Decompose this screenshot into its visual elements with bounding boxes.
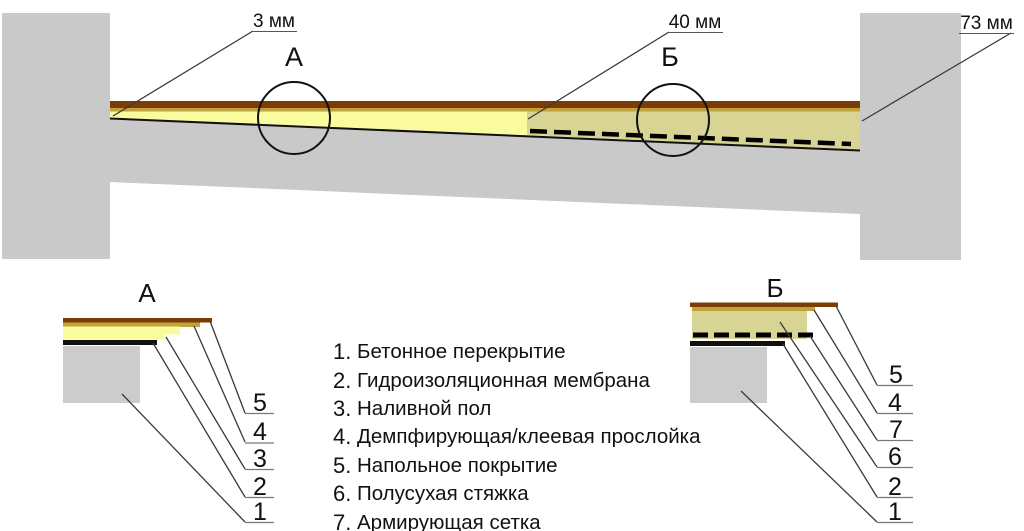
detail-b-number-4: 4: [888, 389, 902, 417]
legend-item-label: Полусухая стяжка: [357, 482, 529, 506]
detail-b-leader-5: [836, 306, 877, 385]
legend-item-6: 6. Полусухая стяжка: [333, 480, 701, 508]
detail-a-leveling-floor: [63, 327, 165, 340]
legend-item-5: 5. Напольное покрытие: [333, 452, 701, 480]
legend-item-label: Гидроизоляционная мембрана: [357, 369, 650, 393]
detail-a-leader-3: [166, 337, 245, 469]
legend-item-number: 7.: [333, 510, 357, 531]
floor-covering-layer: [110, 101, 860, 108]
detail-a-covering: [63, 318, 212, 323]
legend-item-2: 2. Гидроизоляционная мембрана: [333, 366, 701, 394]
legend-item-label: Демпфирующая/клеевая прослойка: [357, 425, 701, 449]
detail-b-concrete: [690, 347, 767, 403]
legend-item-1: 1. Бетонное перекрытие: [333, 338, 701, 366]
legend-item-number: 2.: [333, 368, 357, 394]
callout-letter-b: Б: [650, 44, 690, 71]
detail-b-leader-1: [741, 391, 877, 522]
legend-item-number: 5.: [333, 453, 357, 479]
adhesive-layer: [110, 108, 860, 112]
detail-b-number-7: 7: [889, 416, 903, 444]
detail-b-leader-7: [810, 336, 877, 440]
detail-a-adhesive: [63, 323, 200, 328]
detail-b-leader-6: [780, 322, 877, 467]
detail-a-membrane: [63, 340, 157, 345]
detail-b-title: Б: [750, 275, 800, 301]
detail-a-number-2: 2: [253, 473, 267, 501]
legend-item-label: Армирующая сетка: [357, 511, 541, 531]
detail-b-number-5: 5: [889, 361, 903, 389]
legend-item-number: 3.: [333, 396, 357, 422]
legend-item-3: 3. Наливной пол: [333, 395, 701, 423]
detail-a-concrete: [63, 346, 140, 403]
dimension-label-3mm: 3 мм: [251, 14, 297, 32]
detail-a-leveling-floor-step: [165, 327, 180, 335]
legend-item-label: Бетонное перекрытие: [357, 340, 566, 364]
detail-a-number-3: 3: [253, 445, 267, 473]
detail-b-number-2: 2: [888, 473, 902, 501]
detail-a-number-4: 4: [253, 418, 267, 446]
detail-b-covering: [690, 303, 838, 308]
detail-b-membrane: [690, 341, 785, 346]
dimension-label-73mm: 73 мм: [959, 16, 1014, 34]
dimension-label-40mm: 40 мм: [667, 15, 723, 33]
callout-letter-a: А: [274, 44, 314, 71]
detail-a-number-1: 1: [253, 498, 267, 526]
detail-b-number-6: 6: [888, 443, 902, 471]
legend-item-number: 6.: [333, 481, 357, 507]
legend-item-7: 7. Армирующая сетка: [333, 508, 701, 531]
detail-a-shapes: 5 4 3 2 1: [63, 318, 274, 526]
legend-item-number: 1.: [333, 339, 357, 365]
legend-item-label: Наливной пол: [357, 397, 491, 421]
detail-b-number-1: 1: [888, 498, 902, 526]
detail-b-adhesive: [692, 307, 815, 311]
legend-item-number: 4.: [333, 424, 357, 450]
detail-a-leader-5: [210, 321, 245, 413]
detail-a-title: А: [122, 280, 172, 306]
detail-b-shapes: 5 4 7 6 2 1: [690, 303, 913, 527]
legend-item-label: Напольное покрытие: [357, 454, 558, 478]
detail-a-number-5: 5: [253, 389, 267, 417]
legend-item-4: 4. Демпфирующая/клеевая прослойка: [333, 423, 701, 451]
legend: 1. Бетонное перекрытие 2. Гидроизоляцион…: [333, 338, 701, 531]
floor-layers-diagram: 5 4 3 2 1 5 4 7: [0, 0, 1024, 531]
right-wall: [860, 13, 961, 260]
left-wall: [2, 13, 110, 259]
detail-a-leader-1: [122, 394, 245, 522]
